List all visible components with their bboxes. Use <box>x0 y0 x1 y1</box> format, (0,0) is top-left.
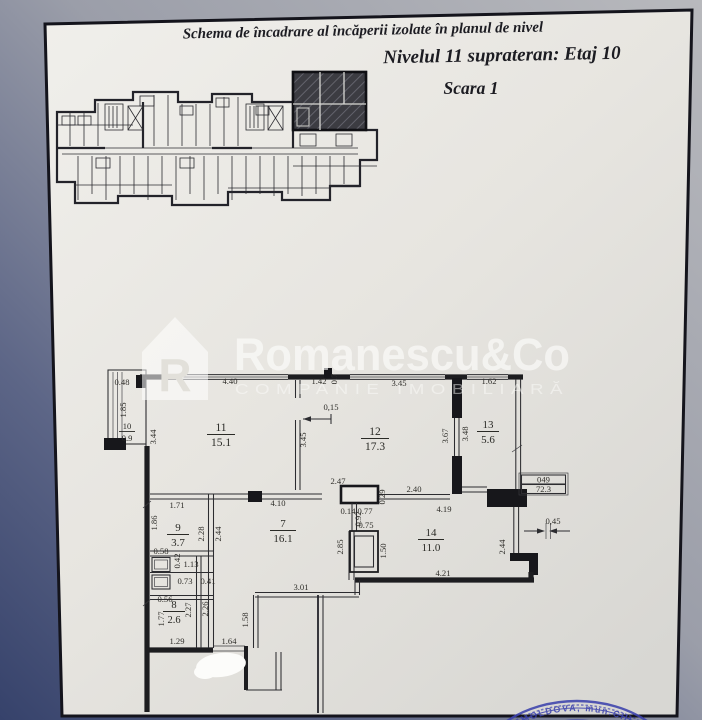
dimension-label: 2.40 <box>406 484 421 494</box>
dimension-label: 1.58 <box>240 612 250 627</box>
dimension-label: 0.29 <box>377 489 387 504</box>
dimension-label: 0.41 <box>200 576 215 586</box>
dimension-label: 4.21 <box>435 568 450 578</box>
dimension-label: 1.77 <box>156 611 166 627</box>
svg-text:15.1: 15.1 <box>211 437 231 449</box>
dimension-label: 2.44 <box>497 539 507 555</box>
svg-text:3.7: 3.7 <box>171 537 185 549</box>
dimension-label: 3.44 <box>148 429 158 445</box>
unit-number: 049 <box>537 475 550 485</box>
svg-text:17.3: 17.3 <box>365 441 385 453</box>
dimension-label: 0.92 <box>353 511 363 526</box>
dimension-label: 2.47 <box>330 476 346 486</box>
dimension-label: 3.48 <box>460 426 470 441</box>
watermark-tagline: COMPANIE IMOBILIARĂ <box>235 381 569 398</box>
dimension-label: 1.86 <box>149 515 159 531</box>
svg-text:7: 7 <box>280 518 286 530</box>
dimension-label: 2.28 <box>196 526 206 541</box>
unit-total-area: 72.3 <box>536 484 551 494</box>
dimension-label: 0.42 <box>172 553 182 568</box>
highlighted-unit <box>293 72 366 130</box>
logo-letter: R <box>158 349 191 401</box>
dimension-label: 1.85 <box>118 402 128 417</box>
dimension-label: 1.13 <box>183 559 198 569</box>
svg-text:9: 9 <box>175 522 181 534</box>
svg-text:16.1: 16.1 <box>273 533 292 545</box>
dimension-label: 3.01 <box>293 582 308 592</box>
svg-text:11.0: 11.0 <box>422 542 441 554</box>
svg-text:2.6: 2.6 <box>167 615 180 626</box>
svg-text:0.9: 0.9 <box>122 433 133 443</box>
dimension-label: 1.29 <box>169 636 184 646</box>
dimension-label: 1.71 <box>169 500 184 510</box>
dimension-label: 3.45 <box>298 432 308 447</box>
dimension-label: 0.58 <box>153 546 168 556</box>
dimension-label: 0.56 <box>157 594 173 604</box>
svg-text:11: 11 <box>215 422 226 434</box>
svg-text:13: 13 <box>483 419 495 431</box>
svg-text:5.6: 5.6 <box>481 434 495 446</box>
dimension-label: 2.44 <box>213 526 223 542</box>
dimension-label: 4.19 <box>436 504 451 514</box>
dimension-label: 1.50 <box>378 543 388 558</box>
watermark-brand: Romanescu&Co <box>234 329 570 380</box>
dimension-label: 2.85 <box>335 539 345 554</box>
dimension-label: 2.26 <box>200 601 210 617</box>
svg-text:14: 14 <box>426 527 438 539</box>
vent-shaft <box>341 486 378 503</box>
dimension-label: 1.64 <box>221 636 237 646</box>
svg-text:10: 10 <box>123 421 132 431</box>
scale-label: Scara 1 <box>444 78 499 98</box>
dimension-label: 3.67 <box>440 428 450 444</box>
dimension-label: 0,45 <box>545 516 560 526</box>
svg-text:12: 12 <box>369 426 381 438</box>
dimension-label: 0,15 <box>323 402 338 412</box>
floorplan-document: Schema de încadrare al încăperii izolate… <box>0 0 702 720</box>
dimension-label: 0.48 <box>114 377 129 387</box>
document-photo: Schema de încadrare al încăperii izolate… <box>0 0 702 720</box>
dimension-label: 0.73 <box>177 576 192 586</box>
dimension-label: 4.10 <box>270 498 285 508</box>
dimension-label: 2.27 <box>183 602 193 618</box>
